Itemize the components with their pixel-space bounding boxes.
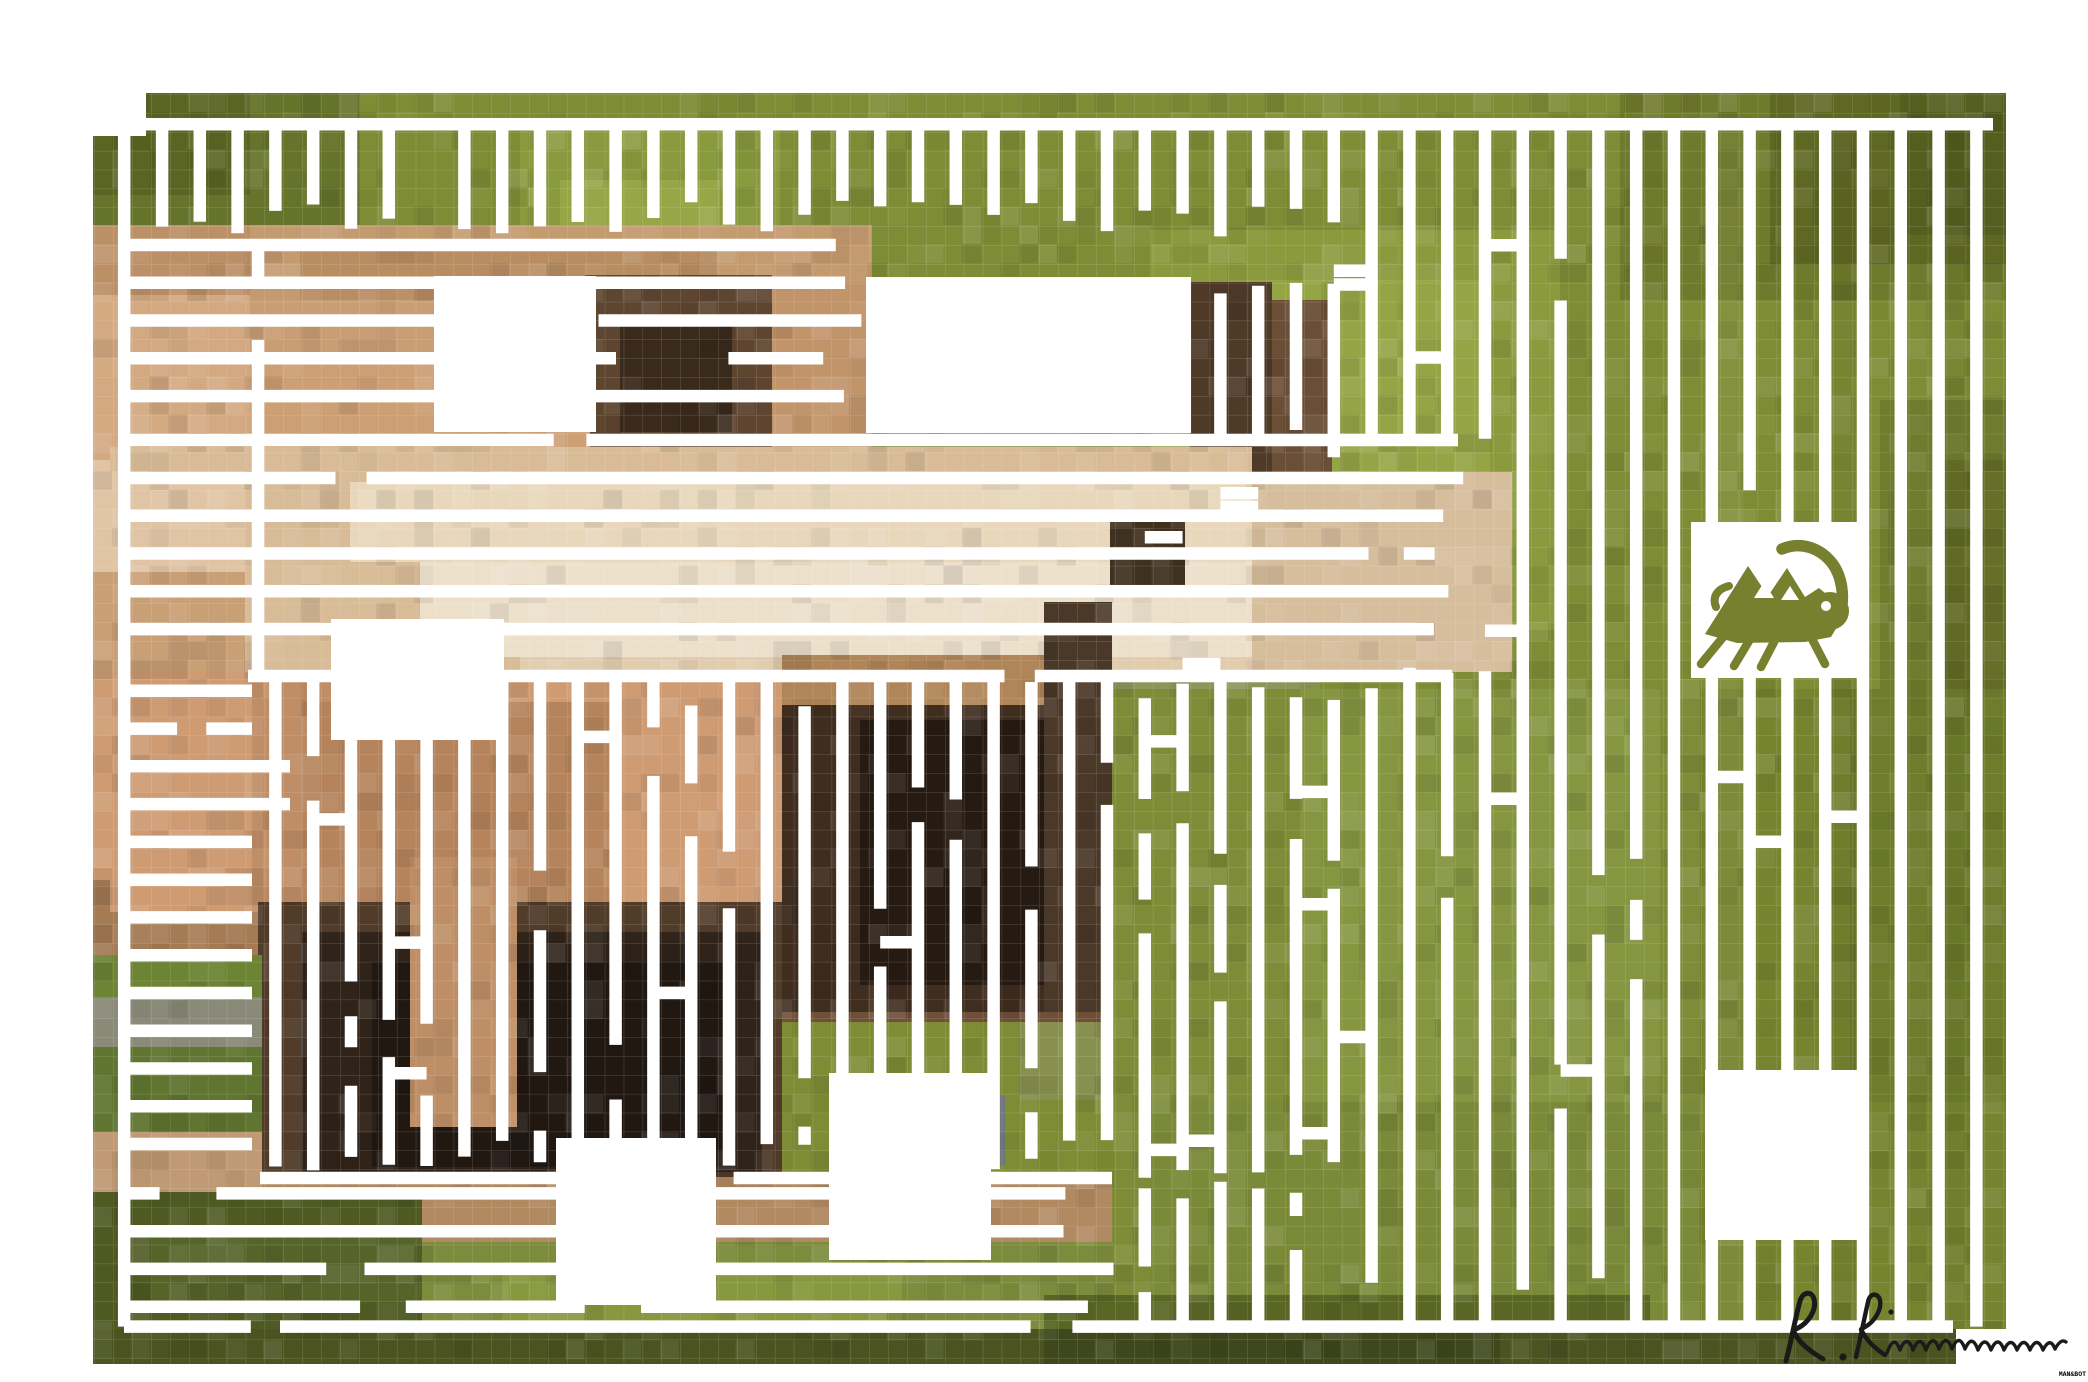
svg-text:MAN&BOT: MAN&BOT — [2059, 1371, 2086, 1377]
